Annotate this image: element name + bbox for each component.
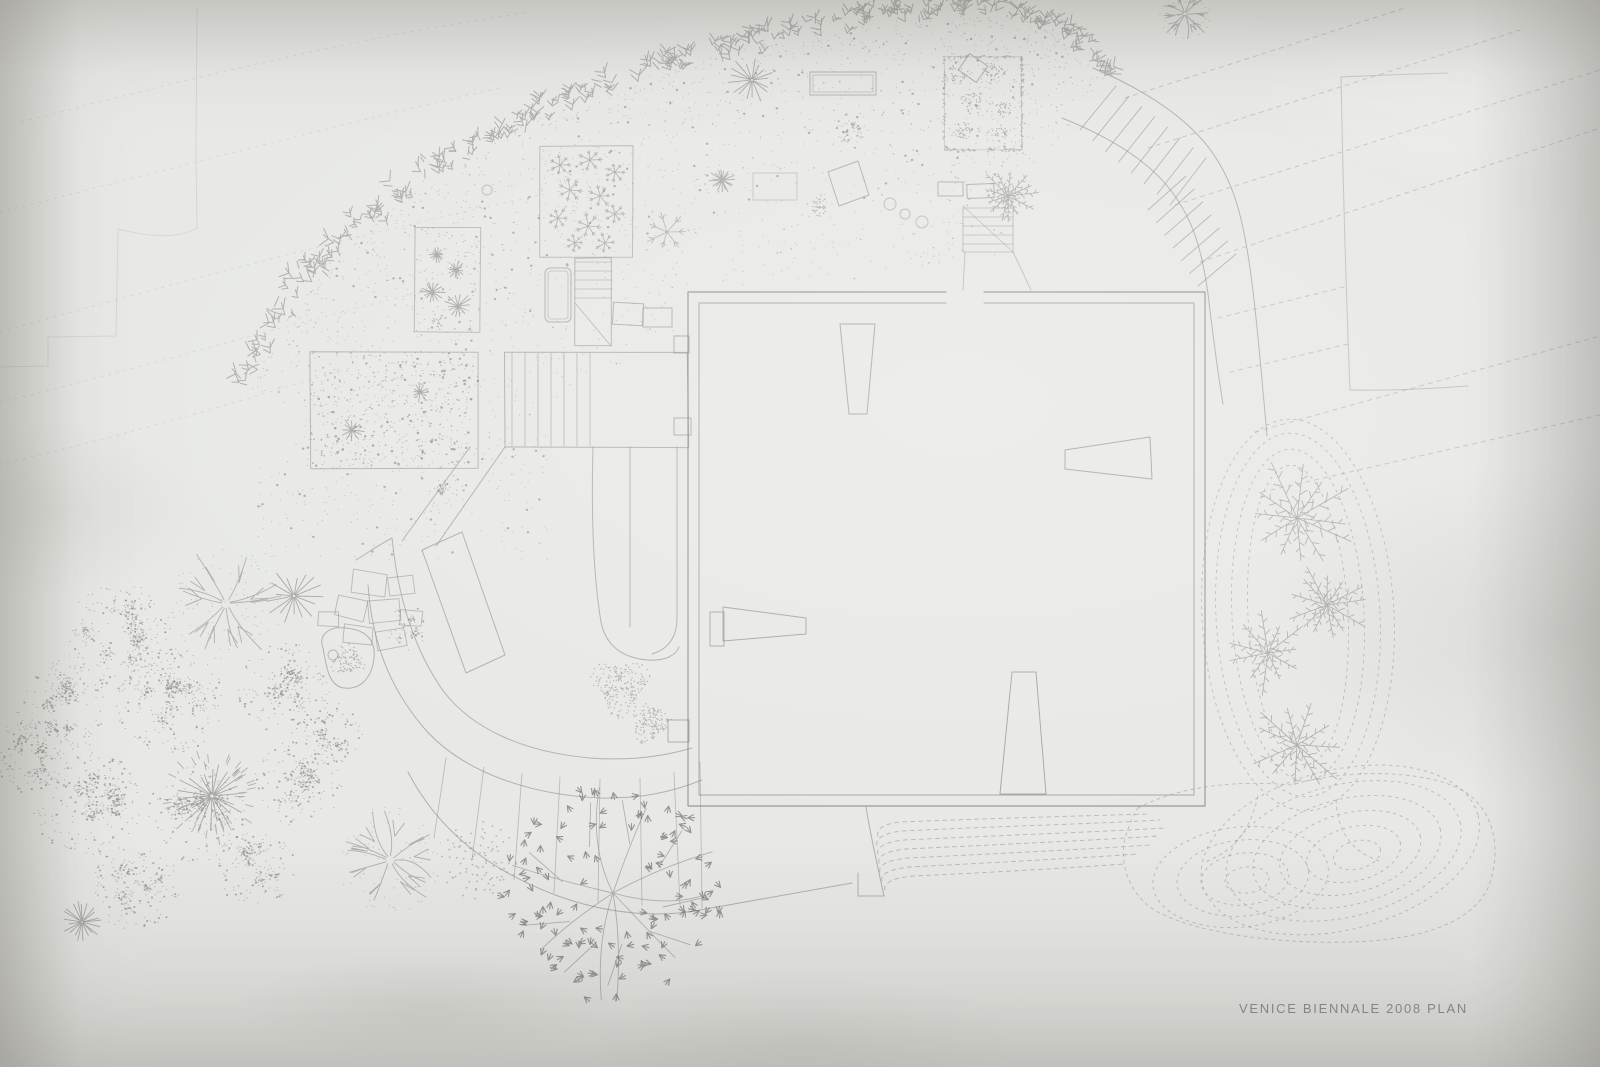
pavilion-building: [668, 292, 1205, 806]
star-tree: [64, 901, 101, 940]
site-plan-photo: VENICE BIENNALE 2008 PLAN: [0, 0, 1600, 1067]
plan-caption: VENICE BIENNALE 2008 PLAN: [1239, 1001, 1468, 1016]
stipple-tree: [96, 848, 179, 928]
star-tree: [728, 59, 772, 101]
star-tree: [267, 573, 323, 622]
garden-plots: [310, 56, 1024, 469]
moss-tree: [807, 195, 825, 216]
branch-tree: [1160, 0, 1210, 38]
branch-tree: [172, 550, 281, 659]
branch-tree: [343, 808, 441, 910]
site-plan-drawing: VENICE BIENNALE 2008 PLAN: [0, 0, 1600, 1067]
trees-and-shrubs: [0, 0, 1366, 1003]
stipple-tree: [239, 644, 330, 733]
stipple-tree: [32, 745, 139, 855]
moss-tree: [591, 664, 650, 719]
hardscape-paths-and-stairs: [318, 53, 1267, 913]
snowflake-tree: [647, 212, 685, 247]
gravel-stipple-field: [253, 14, 1104, 559]
stipple-tree: [255, 742, 342, 824]
star-tree: [709, 170, 734, 192]
stipple-tree: [219, 834, 294, 903]
dandelion-tree: [163, 751, 256, 844]
shrub-band-arc: [227, 0, 1123, 385]
palm-tree: [1254, 703, 1340, 784]
stipple-tree: [69, 587, 170, 689]
palm-tree: [986, 172, 1039, 222]
moss-tree: [633, 704, 671, 743]
stipple-tree: [0, 720, 61, 792]
dashed-contours: [877, 414, 1498, 962]
leafy-tree: [498, 787, 723, 1003]
stipple-tree: [837, 114, 869, 148]
palm-tree: [1255, 463, 1351, 561]
faint-construction-lines: [0, 8, 1600, 492]
